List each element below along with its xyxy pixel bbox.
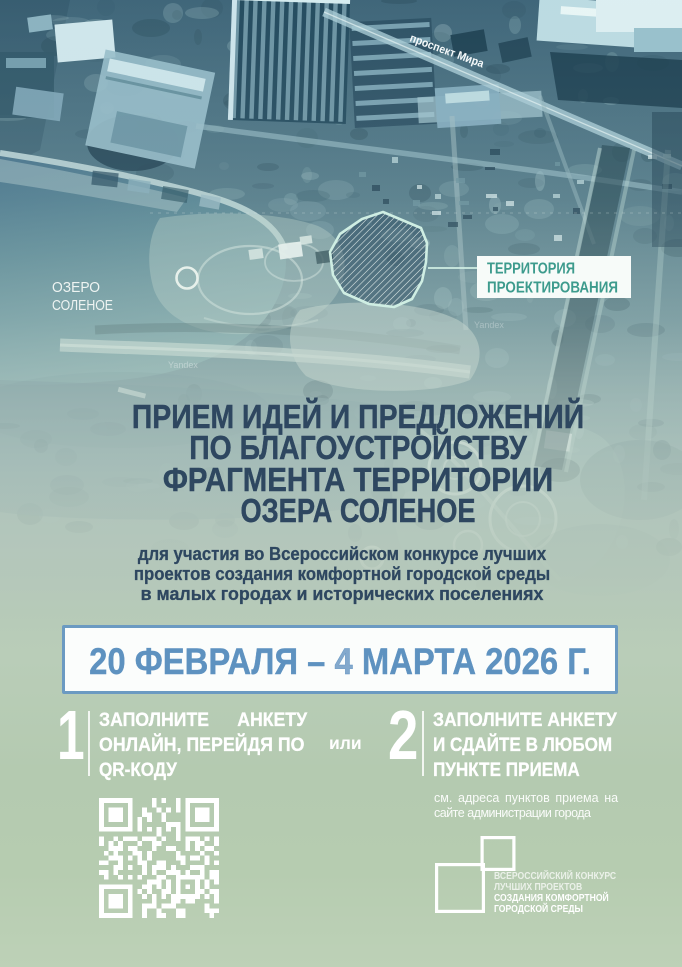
svg-text:ТЕРРИТОРИЯ: ТЕРРИТОРИЯ xyxy=(487,261,575,278)
svg-text:ПРОЕКТИРОВАНИЯ: ПРОЕКТИРОВАНИЯ xyxy=(487,280,618,297)
svg-text:ОЗЕРО: ОЗЕРО xyxy=(52,280,100,296)
svg-text:Yandex: Yandex xyxy=(474,320,504,330)
svg-text:СОЛЕНОЕ: СОЛЕНОЕ xyxy=(52,298,113,314)
svg-text:Yandex: Yandex xyxy=(168,360,198,370)
